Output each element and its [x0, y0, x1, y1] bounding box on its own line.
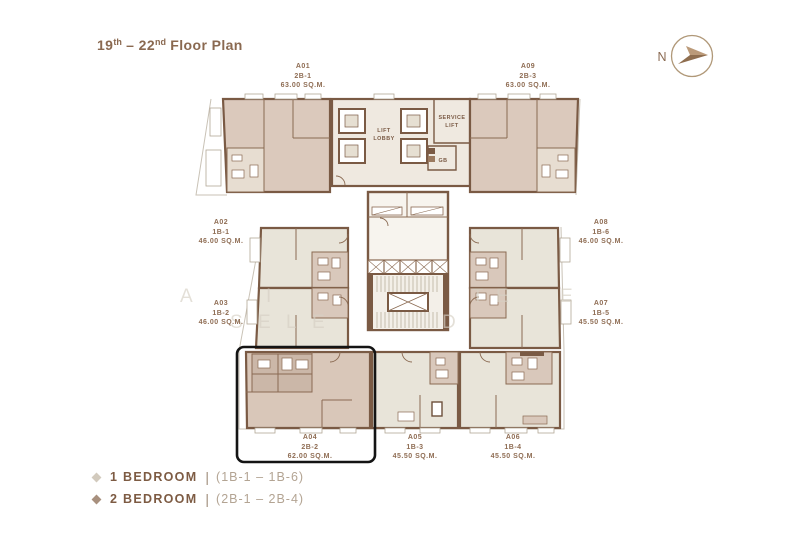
lift-lobby-label-1: LIFT — [377, 128, 391, 134]
unit-a07-shape[interactable] — [470, 288, 571, 348]
unit-area: 45.50 SQ.M. — [491, 452, 536, 462]
unit-a01-shape[interactable] — [206, 99, 330, 192]
unit-label-a02: A02 1B-1 46.00 SQ.M. — [199, 218, 244, 247]
unit-label-a06: A06 1B-4 45.50 SQ.M. — [491, 433, 536, 462]
unit-a04-shape[interactable] — [246, 352, 370, 428]
watermark-letter: D — [442, 312, 457, 333]
unit-id: A07 — [579, 299, 624, 309]
legend-row-1-bedroom: 1 BEDROOM | (1B-1 – 1B-6) — [89, 466, 304, 488]
page-title: 19th – 22nd Floor Plan — [97, 37, 243, 53]
watermark-letter: A — [180, 286, 194, 307]
watermark-letter: E — [496, 286, 510, 307]
unit-area: 45.50 SQ.M. — [579, 318, 624, 328]
compass-n-label: N — [657, 50, 666, 64]
unit-area: 46.00 SQ.M. — [199, 237, 244, 247]
watermark-letter: E — [258, 312, 272, 333]
legend-range: (2B-1 – 2B-4) — [216, 492, 304, 506]
legend-divider: | — [205, 469, 209, 485]
legend-row-2-bedroom: 2 BEDROOM | (2B-1 – 2B-4) — [89, 488, 304, 510]
unit-code: 1B-1 — [199, 228, 244, 238]
legend-label: 2 BEDROOM — [110, 492, 197, 506]
unit-a02-shape[interactable] — [250, 228, 348, 288]
stairs — [368, 274, 448, 330]
unit-a06-shape[interactable] — [460, 352, 560, 428]
central-core — [368, 192, 448, 330]
unit-code: 2B-1 — [281, 72, 326, 82]
unit-area: 46.00 SQ.M. — [579, 237, 624, 247]
unit-code: 1B-6 — [579, 228, 624, 238]
compass-arrow-icon — [686, 46, 708, 55]
unit-id: A04 — [288, 433, 333, 443]
legend: 1 BEDROOM | (1B-1 – 1B-6) 2 BEDROOM | (2… — [89, 466, 304, 510]
legend-divider: | — [205, 491, 209, 507]
unit-area: 63.00 SQ.M. — [281, 81, 326, 91]
lift-lobby-block: LIFT LOBBY SERVICE LIFT GB — [332, 99, 470, 186]
unit-code: 1B-5 — [579, 309, 624, 319]
unit-area: 45.50 SQ.M. — [393, 452, 438, 462]
unit-code: 2B-2 — [288, 443, 333, 453]
unit-code: 1B-4 — [491, 443, 536, 453]
unit-id: A02 — [199, 218, 244, 228]
service-lift-label-2: LIFT — [445, 123, 459, 129]
unit-a09-shape[interactable] — [470, 99, 578, 192]
watermark-letter: T — [472, 286, 485, 307]
watermark-letter: E — [560, 286, 574, 307]
unit-id: A05 — [393, 433, 438, 443]
unit-label-a09: A09 2B-3 63.00 SQ.M. — [506, 62, 551, 91]
unit-code: 2B-3 — [506, 72, 551, 82]
compass: N — [657, 36, 712, 77]
unit-label-a01: A01 2B-1 63.00 SQ.M. — [281, 62, 326, 91]
diamond-icon — [92, 494, 102, 504]
compass-arrow-icon — [678, 55, 708, 64]
service-lift-label-1: SERVICE — [438, 115, 465, 121]
unit-code: 1B-2 — [199, 309, 244, 319]
watermark-letter: I — [266, 286, 272, 307]
unit-code: 1B-3 — [393, 443, 438, 453]
watermark-letter: E — [312, 312, 326, 333]
unit-id: A08 — [579, 218, 624, 228]
watermark-letter: L — [286, 312, 298, 333]
unit-label-a07: A07 1B-5 45.50 SQ.M. — [579, 299, 624, 328]
lift-lobby-label-2: LOBBY — [373, 136, 394, 142]
legend-label: 1 BEDROOM — [110, 470, 197, 484]
unit-a05-shape[interactable] — [372, 352, 458, 428]
unit-area: 63.00 SQ.M. — [506, 81, 551, 91]
unit-label-a08: A08 1B-6 46.00 SQ.M. — [579, 218, 624, 247]
title-part: – 22 — [122, 37, 155, 53]
unit-id: A09 — [506, 62, 551, 72]
unit-id: A03 — [199, 299, 244, 309]
unit-area: 62.00 SQ.M. — [288, 452, 333, 462]
title-part: Floor Plan — [166, 37, 243, 53]
title-superscript: nd — [155, 37, 166, 47]
title-part: 19 — [97, 37, 113, 53]
diamond-icon — [92, 472, 102, 482]
floor-plan-page: LIFT LOBBY SERVICE LIFT GB — [0, 0, 800, 533]
unit-a08-shape[interactable] — [470, 228, 570, 288]
gb-label: GB — [438, 158, 447, 164]
title-superscript: th — [113, 37, 122, 47]
unit-label-a03: A03 1B-2 46.00 SQ.M. — [199, 299, 244, 328]
unit-id: A01 — [281, 62, 326, 72]
unit-id: A06 — [491, 433, 536, 443]
unit-label-a04: A04 2B-2 62.00 SQ.M. — [288, 433, 333, 462]
legend-range: (1B-1 – 1B-6) — [216, 470, 304, 484]
unit-area: 46.00 SQ.M. — [199, 318, 244, 328]
unit-label-a05: A05 1B-3 45.50 SQ.M. — [393, 433, 438, 462]
